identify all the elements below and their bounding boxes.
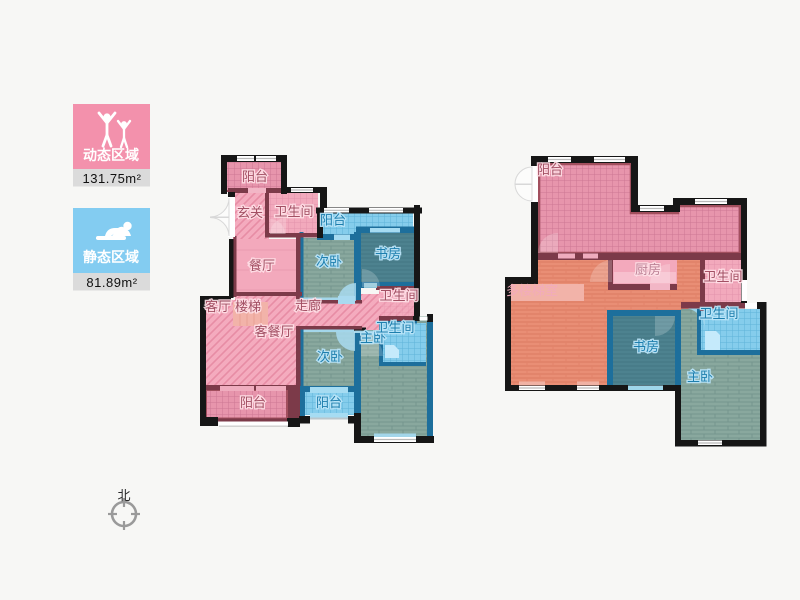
svg-text:次卧: 次卧 <box>317 349 343 364</box>
svg-text:卫生间: 卫生间 <box>375 320 414 335</box>
svg-text:131.75m²: 131.75m² <box>83 171 142 186</box>
svg-text:北: 北 <box>117 488 130 503</box>
svg-text:多楼梯室: 多楼梯室 <box>506 283 558 298</box>
svg-text:书房: 书房 <box>633 339 659 354</box>
svg-text:卫生间: 卫生间 <box>379 288 418 303</box>
svg-text:卫生间: 卫生间 <box>699 306 738 321</box>
svg-text:走廊: 走廊 <box>295 298 321 313</box>
svg-text:动态区域: 动态区域 <box>83 147 139 163</box>
svg-text:书房: 书房 <box>375 246 401 261</box>
svg-text:81.89m²: 81.89m² <box>86 275 137 290</box>
svg-text:楼梯: 楼梯 <box>235 299 261 314</box>
svg-text:客厅: 客厅 <box>205 299 231 314</box>
svg-text:卫生间: 卫生间 <box>274 204 313 219</box>
svg-text:玄关: 玄关 <box>237 205 263 220</box>
svg-text:餐厅: 餐厅 <box>249 258 275 273</box>
svg-text:主卧: 主卧 <box>687 369 713 384</box>
svg-text:阳台: 阳台 <box>242 169 268 184</box>
svg-text:阳台: 阳台 <box>316 395 342 410</box>
svg-text:厨房: 厨房 <box>635 262 661 277</box>
svg-text:次卧: 次卧 <box>316 254 342 269</box>
svg-text:阳台: 阳台 <box>320 213 346 228</box>
svg-text:卫生间: 卫生间 <box>703 269 742 284</box>
svg-text:静态区域: 静态区域 <box>83 249 139 265</box>
svg-text:阳台: 阳台 <box>537 162 563 177</box>
svg-text:客餐厅: 客餐厅 <box>254 324 293 339</box>
svg-text:阳台: 阳台 <box>240 395 266 410</box>
